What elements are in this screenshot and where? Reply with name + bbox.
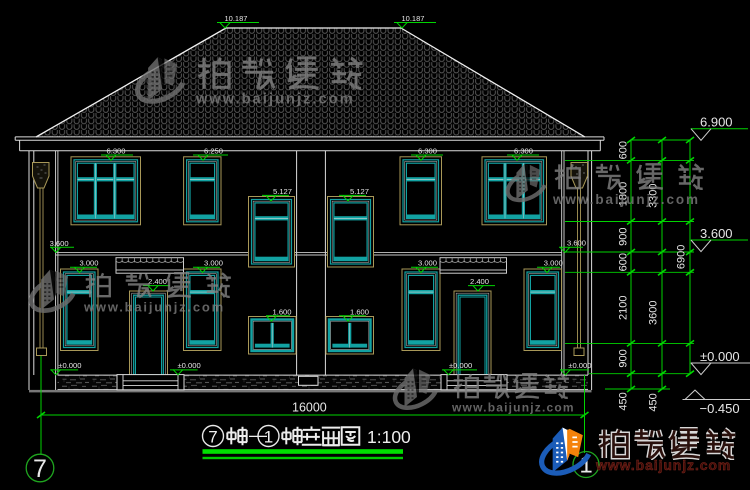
svg-text:600: 600: [618, 141, 630, 159]
svg-text:3600: 3600: [648, 301, 660, 325]
svg-text:3.600: 3.600: [50, 239, 69, 248]
svg-text:3.000: 3.000: [80, 259, 99, 268]
svg-text:6.300: 6.300: [107, 147, 126, 156]
svg-text:7: 7: [33, 455, 47, 483]
svg-text:5.127: 5.127: [350, 187, 369, 196]
svg-text:2.400: 2.400: [148, 277, 167, 286]
svg-text:10.187: 10.187: [402, 14, 425, 23]
svg-text:5.127: 5.127: [273, 187, 292, 196]
svg-text:3.000: 3.000: [418, 259, 437, 268]
svg-text:3.600: 3.600: [700, 226, 733, 241]
svg-text:±0.000: ±0.000: [700, 349, 740, 364]
svg-text:1: 1: [264, 428, 273, 447]
svg-text:7: 7: [208, 428, 217, 447]
svg-text:3.000: 3.000: [204, 259, 223, 268]
svg-text:www.baijunjz.com: www.baijunjz.com: [595, 457, 731, 473]
svg-text:±0.000: ±0.000: [178, 361, 201, 370]
svg-text:6900: 6900: [676, 245, 688, 269]
svg-text:±0.000: ±0.000: [449, 361, 472, 370]
svg-text:900: 900: [618, 228, 630, 246]
svg-text:450: 450: [618, 392, 630, 410]
svg-text:900: 900: [618, 349, 630, 367]
svg-text:1.600: 1.600: [350, 307, 369, 316]
svg-text:1.600: 1.600: [273, 307, 292, 316]
svg-text:www.baijunjz.com: www.baijunjz.com: [83, 300, 225, 315]
svg-text:6.900: 6.900: [700, 115, 733, 130]
svg-text:2.400: 2.400: [470, 277, 489, 286]
svg-text:16000: 16000: [292, 401, 327, 415]
svg-text:3.000: 3.000: [544, 259, 563, 268]
svg-text:600: 600: [618, 253, 630, 271]
svg-text:2100: 2100: [618, 296, 630, 320]
svg-text:6.250: 6.250: [204, 147, 223, 156]
svg-text:10.187: 10.187: [225, 14, 248, 23]
svg-text:www.baijunjz.com: www.baijunjz.com: [552, 192, 700, 207]
svg-text:3.600: 3.600: [567, 239, 586, 248]
svg-text:1:100: 1:100: [367, 427, 411, 447]
svg-text:±0.000: ±0.000: [58, 361, 81, 370]
svg-text:www.baijunjz.com: www.baijunjz.com: [451, 401, 575, 415]
svg-text:6.300: 6.300: [418, 147, 437, 156]
svg-text:±0.000: ±0.000: [568, 361, 591, 370]
svg-text:−0.450: −0.450: [700, 401, 740, 416]
svg-text:www.baijunjz.com: www.baijunjz.com: [195, 92, 355, 108]
svg-text:450: 450: [648, 393, 660, 411]
svg-text:6.300: 6.300: [514, 147, 533, 156]
